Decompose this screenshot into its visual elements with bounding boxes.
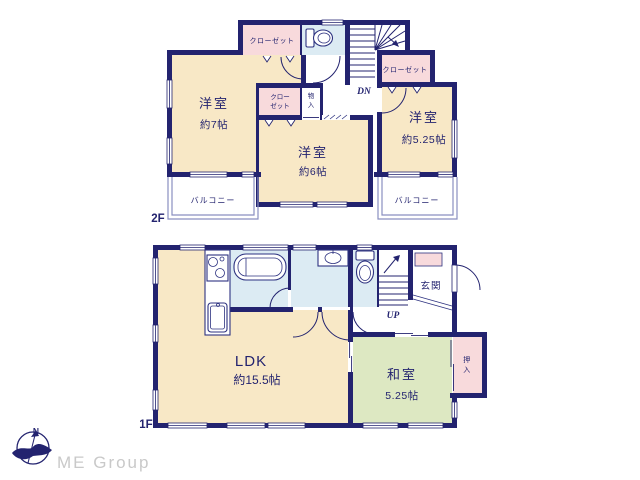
floor-plan-drawing: DN バルコニー バルコニー 洋室 約7帖 洋室 約6帖 洋室 約5.25帖 ク… [0,0,640,480]
front-door-opening [452,265,457,292]
closet-inner-label-1: クロー [270,93,290,101]
oshiire-closet [453,337,482,393]
bathtub-icon [234,254,286,280]
oshiire-label-2: 入 [463,366,471,374]
washitsu-size: 5.25帖 [385,389,418,402]
second-floor-plan: DN バルコニー バルコニー 洋室 約7帖 洋室 約6帖 洋室 約5.25帖 ク… [151,20,457,225]
room7-size: 約7帖 [200,118,228,131]
balcony-left: バルコニー [168,177,258,219]
oshiire-label-1: 押 [463,355,471,364]
room525-size: 約5.25帖 [402,133,446,146]
stove-icon [207,255,228,281]
room-yoshitsu-525 [382,87,452,172]
floor-label-1f: 1F [139,419,152,431]
toilet-icon-2f [306,29,333,47]
floor-plan-page: DN バルコニー バルコニー 洋室 約7帖 洋室 約6帖 洋室 約5.25帖 ク… [0,0,640,480]
kitchen-sink-icon [208,303,227,332]
ldk-size: 約15.5帖 [233,372,280,387]
room7-name: 洋室 [199,96,229,111]
room6-size: 約6帖 [299,165,327,178]
compass-north-label: N [33,426,39,436]
closet-inner-label-2: ゼット [270,101,290,110]
closet-top-label: クローゼット [250,36,295,45]
kitchen-counter [205,250,230,335]
genkan-label: 玄関 [420,280,441,292]
staircase-1f: UP [379,255,408,321]
room-yoshitsu-6 [259,120,368,202]
balcony-right-label: バルコニー [395,196,440,205]
shoe-cabinet [415,253,442,266]
room6-name: 洋室 [298,145,328,160]
closet-right-label: クローゼット [383,65,428,74]
toilet-icon-1f [356,251,374,283]
stair-direction-2f: DN [356,87,372,97]
washbasin-icon [318,250,348,266]
first-floor-plan: UP [139,245,487,431]
stair-direction-1f: UP [387,311,400,321]
room525-name: 洋室 [409,110,439,125]
genkan-step-edge [413,295,452,310]
balcony-left-label: バルコニー [191,196,236,205]
brand-logo-text: ME Group [57,453,150,472]
compass-icon: N [12,426,52,464]
closet-inner [259,88,300,115]
ldk-name: LDK [235,353,267,370]
washitsu-name: 和室 [387,367,417,382]
storage-label-1: 物 [308,91,315,100]
storage-label-2: 入 [308,102,315,109]
balcony-right: バルコニー [378,177,457,219]
floor-label-2f: 2F [151,213,164,225]
